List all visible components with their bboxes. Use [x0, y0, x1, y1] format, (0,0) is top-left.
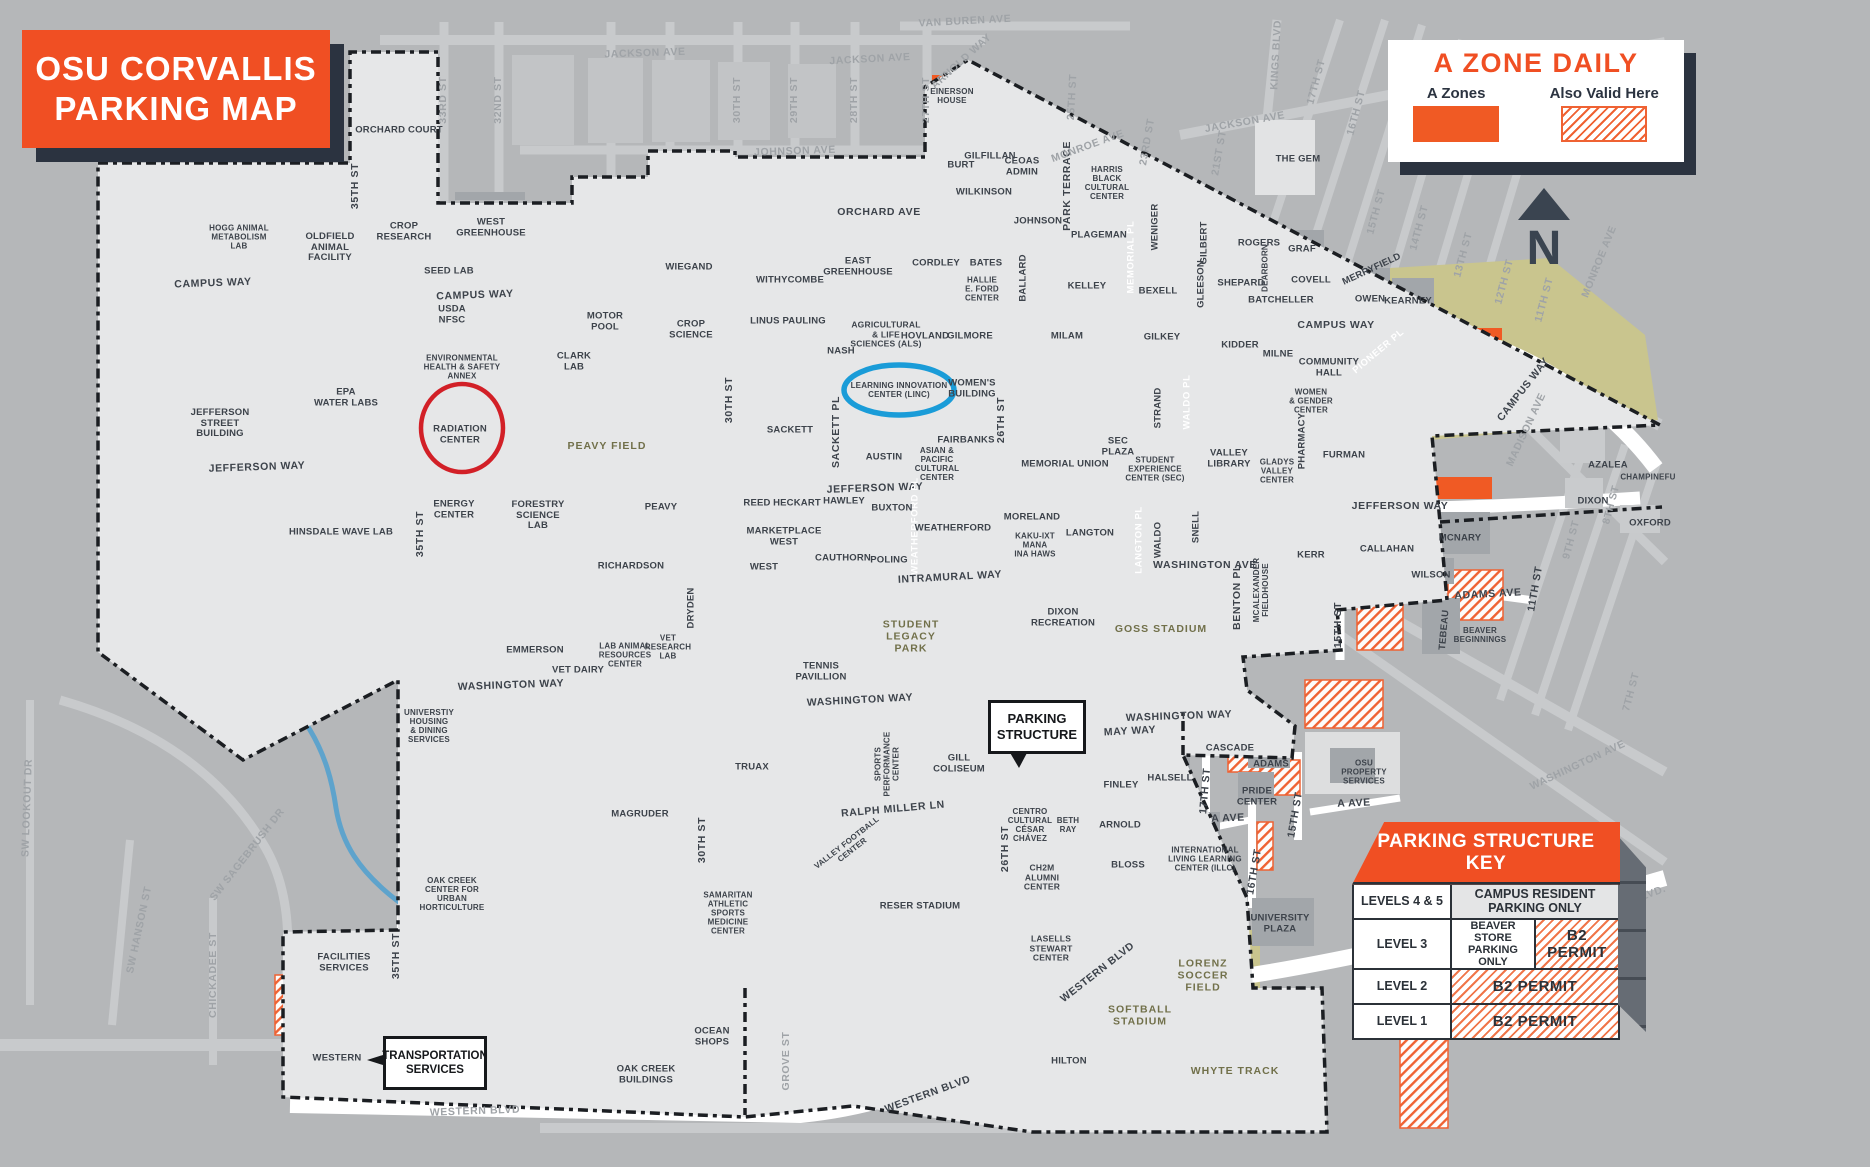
- parking-structure-key: PARKING STRUCTURE KEY LEVELS 4 & 5 CAMPU…: [1352, 822, 1620, 1040]
- parking-map: CAMPUS WAYCAMPUS WAYCAMPUS WAYCAMPUS WAY…: [0, 0, 1870, 1167]
- legend-also-valid-label: Also Valid Here: [1550, 85, 1659, 102]
- north-arrow-triangle: [1518, 188, 1570, 220]
- legend-title: A ZONE DAILY: [1388, 48, 1684, 79]
- parking-key-row: LEVELS 4 & 5 CAMPUS RESIDENT PARKING ONL…: [1352, 885, 1620, 920]
- callout-pointer: [367, 1054, 386, 1066]
- transportation-services-callout: TRANSPORTATION SERVICES: [383, 1036, 487, 1090]
- also-valid-swatch: [1561, 106, 1647, 142]
- parking-key-row: LEVEL 2 B2 PERMIT: [1352, 970, 1620, 1005]
- parking-key-row: LEVEL 1 B2 PERMIT: [1352, 1005, 1620, 1040]
- level-rule: B2 PERMIT: [1452, 1005, 1618, 1038]
- level-label: LEVELS 4 & 5: [1354, 885, 1452, 918]
- parking-structure-callout-text: PARKING STRUCTURE: [997, 711, 1077, 742]
- parking-key-title: PARKING STRUCTURE KEY: [1352, 822, 1620, 885]
- parking-key-3d-side: [1618, 836, 1646, 1032]
- level-rule: B2 PERMIT: [1452, 970, 1618, 1003]
- north-arrow-icon: N: [1512, 188, 1576, 273]
- title-block: OSU CORVALLIS PARKING MAP: [22, 30, 330, 148]
- north-arrow-letter: N: [1512, 225, 1576, 273]
- level-label: LEVEL 2: [1354, 970, 1452, 1003]
- level-rule: CAMPUS RESIDENT PARKING ONLY: [1452, 885, 1618, 918]
- callout-pointer: [1009, 751, 1028, 768]
- transportation-services-callout-text: TRANSPORTATION SERVICES: [382, 1049, 488, 1078]
- level-label: LEVEL 3: [1354, 920, 1452, 968]
- legend-a-zones-label: A Zones: [1413, 85, 1499, 102]
- legend: A ZONE DAILY A Zones Also Valid Here: [1388, 40, 1684, 162]
- page-title: OSU CORVALLIS PARKING MAP: [22, 30, 330, 148]
- level-rule: BEAVER STORE PARKING ONLY: [1452, 920, 1536, 968]
- a-zone-swatch: [1413, 106, 1499, 142]
- level-label: LEVEL 1: [1354, 1005, 1452, 1038]
- level-rule: B2 PERMIT: [1536, 920, 1618, 968]
- parking-key-row: LEVEL 3 BEAVER STORE PARKING ONLY B2 PER…: [1352, 920, 1620, 970]
- parking-structure-callout: PARKING STRUCTURE: [988, 700, 1086, 754]
